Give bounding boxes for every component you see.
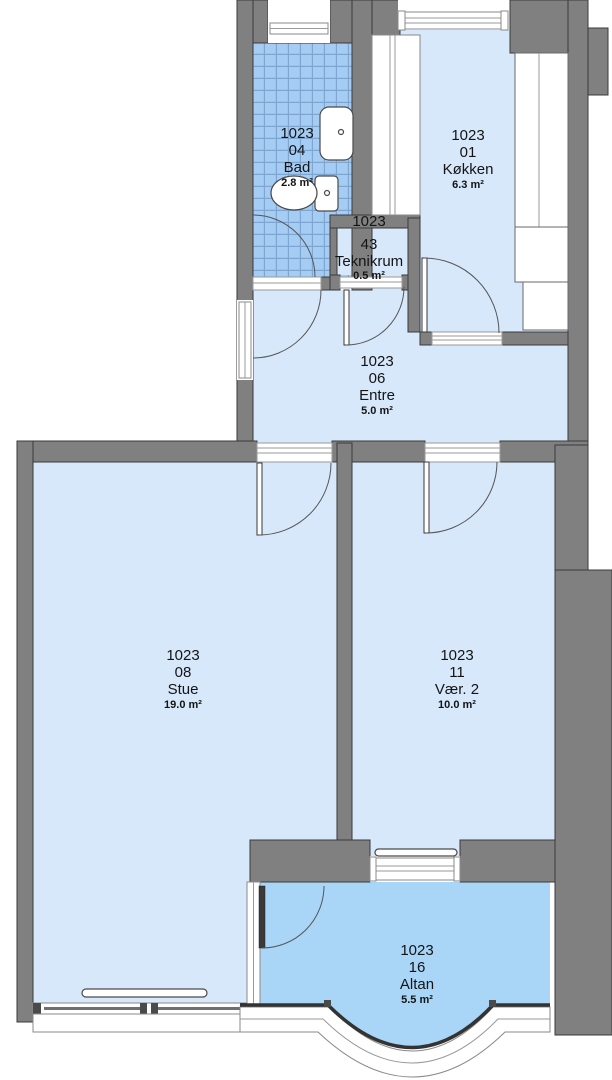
room-area: 5.0 m²	[361, 405, 393, 417]
duct-shaft	[372, 35, 420, 215]
bedroom-balcony-window	[370, 856, 460, 882]
floor-plan-canvas: 1023 04 Bad 2.8 m² 1023 01 Køkken 6.3 m²…	[0, 0, 612, 1080]
wall-segment	[568, 0, 588, 445]
radiator	[82, 989, 207, 997]
room-subid: 08	[175, 664, 192, 681]
sink	[320, 107, 353, 160]
wall-segment	[17, 441, 257, 462]
room-id: 1023	[166, 647, 199, 664]
room-subid: 01	[460, 144, 477, 161]
room-area: 2.8 m²	[281, 177, 313, 189]
living-room-door-leaf	[257, 463, 262, 535]
room-area: 19.0 m²	[164, 699, 202, 711]
room-name: Entre	[359, 387, 395, 404]
room-name: Køkken	[443, 161, 494, 178]
wall-segment	[420, 332, 432, 345]
wall-segment	[460, 840, 555, 882]
room-id: 1023	[451, 127, 484, 144]
utility-door-leaf	[344, 290, 349, 345]
room-id: 1023	[280, 125, 313, 142]
room-subid: 04	[289, 142, 306, 159]
room-name: Teknikrum	[335, 253, 403, 270]
wall-segment	[250, 840, 370, 882]
living-room-window	[33, 1003, 250, 1032]
wall-segment	[337, 443, 352, 882]
window-sill	[33, 1014, 250, 1032]
balcony-door-leaf	[259, 886, 265, 948]
wall-segment	[330, 275, 340, 290]
wall-segment	[555, 570, 612, 1035]
kitchen-counter	[515, 53, 568, 330]
wall-segment	[555, 445, 588, 570]
room-id: 1023	[400, 942, 433, 959]
room-subid: 06	[369, 370, 386, 387]
room-subid: 43	[361, 236, 378, 253]
wall-segment	[588, 28, 608, 95]
room-area: 0.5 m²	[353, 270, 385, 282]
radiator	[375, 849, 457, 856]
wall-segment	[502, 332, 568, 345]
room-area: 10.0 m²	[438, 699, 476, 711]
room-subid: 16	[409, 959, 426, 976]
room-name: Stue	[168, 681, 199, 698]
room-subid: 11	[449, 664, 465, 681]
kitchen-window	[398, 0, 508, 30]
bedroom-door-leaf	[424, 462, 429, 533]
room-name: Vær. 2	[435, 681, 479, 698]
room-area: 5.5 m²	[401, 994, 433, 1006]
room-name: Altan	[400, 976, 434, 993]
floor-plan-drawing: 1023 04 Bad 2.8 m² 1023 01 Køkken 6.3 m²…	[0, 0, 612, 1080]
room-id: 1023	[352, 213, 385, 230]
kitchen-door-opening	[432, 332, 502, 345]
balcony-side-window	[247, 882, 260, 1005]
wall-segment	[408, 218, 420, 332]
entre-window	[237, 300, 253, 380]
room-area: 6.3 m²	[452, 179, 484, 191]
kitchen-door-leaf	[422, 258, 427, 332]
room-id: 1023	[440, 647, 473, 664]
room-id: 1023	[360, 353, 393, 370]
wall-segment	[253, 0, 268, 43]
room-name: Bad	[284, 159, 311, 176]
bathroom-window	[268, 0, 330, 43]
wall-segment	[17, 441, 33, 1022]
